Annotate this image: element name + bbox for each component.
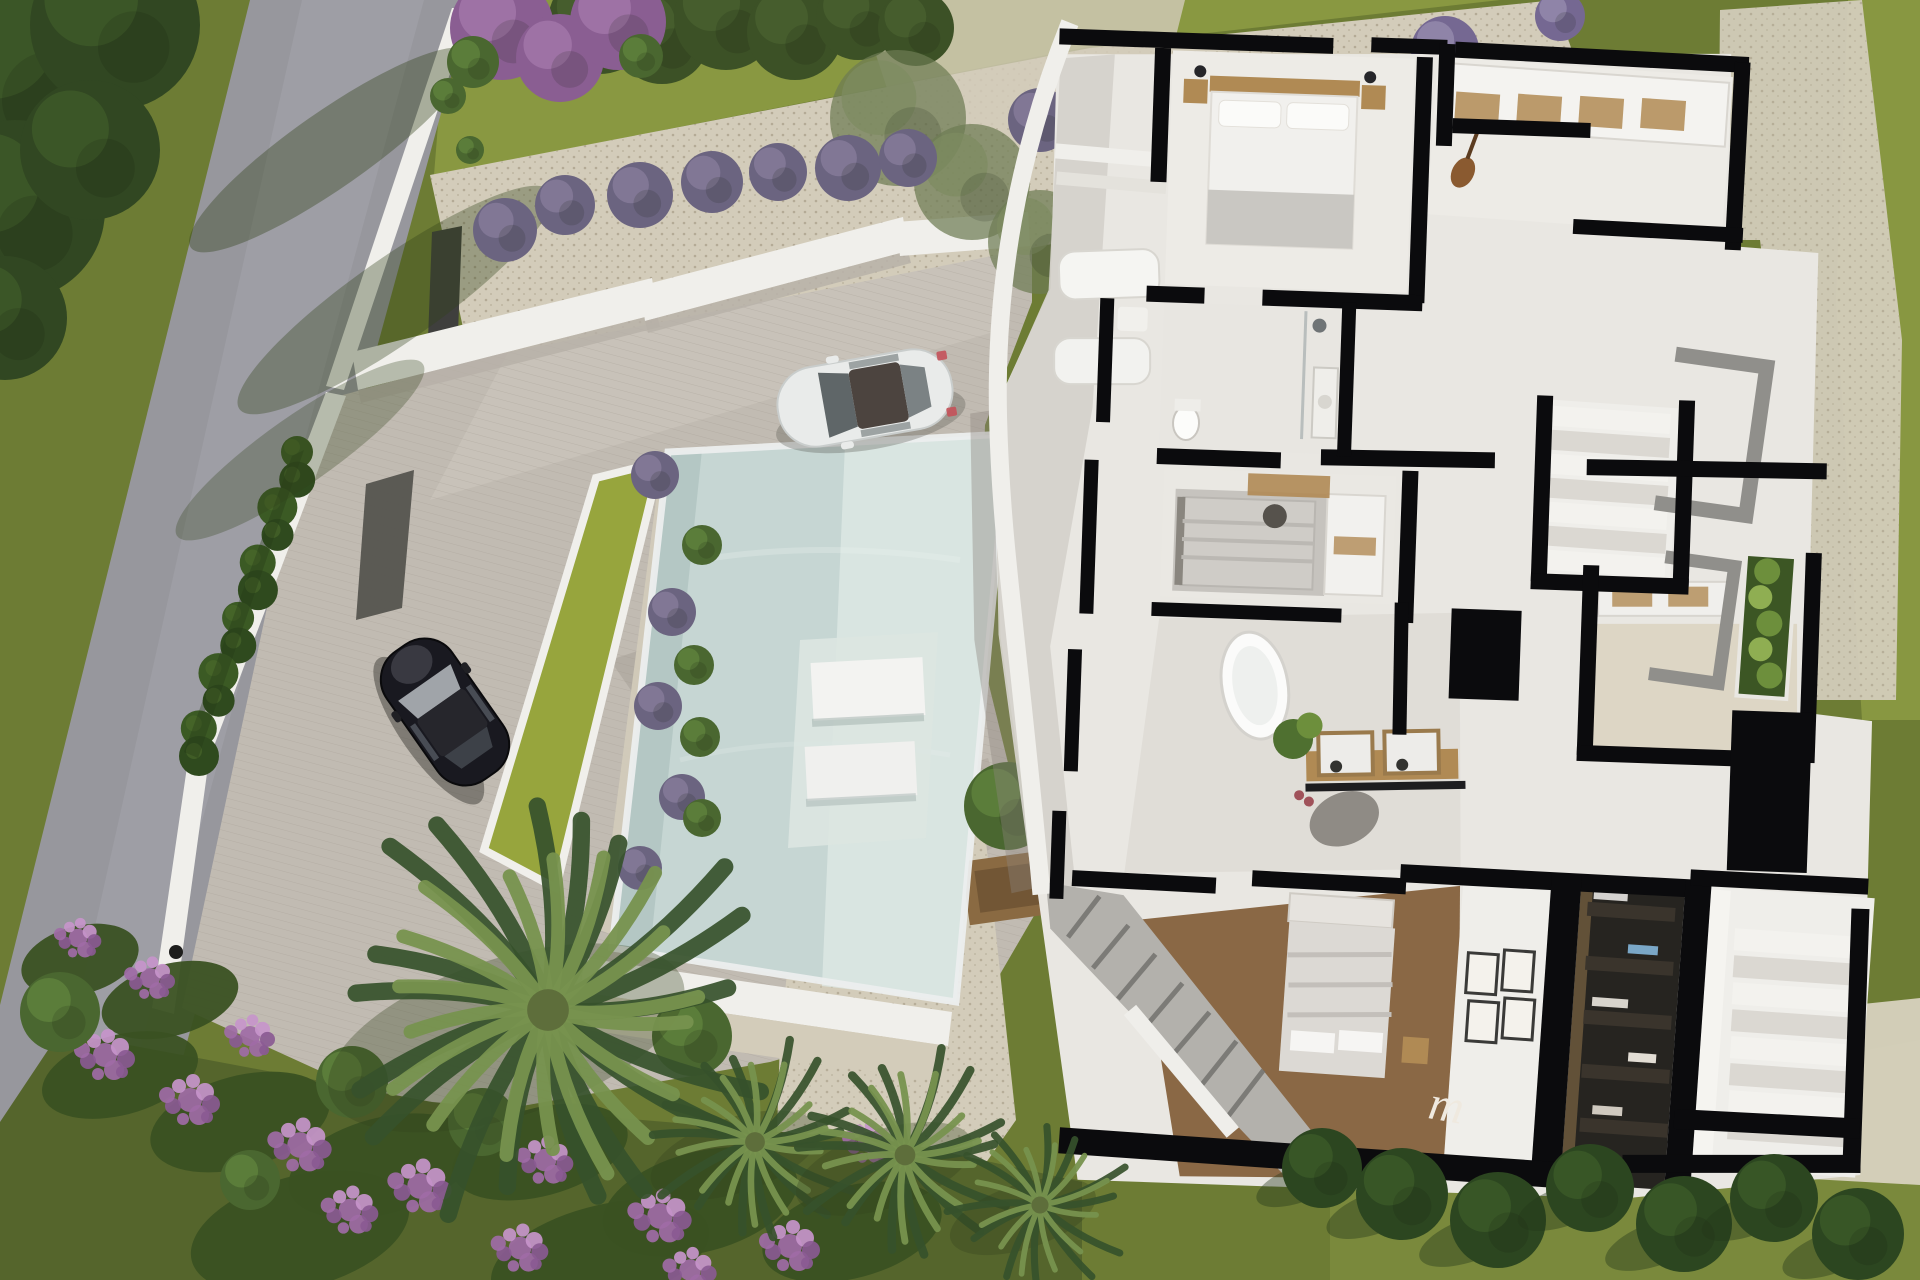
lounger-side-table [1117,307,1148,332]
lawn-bush-8 [683,799,721,837]
picture-frame-4 [1502,998,1535,1040]
green-accent-2 [619,34,663,78]
lavender-3 [607,162,673,228]
tree-canopy-tl-4 [20,80,160,220]
bedroom1-pillow-r [1286,102,1349,130]
garden-shrub-4 [220,1150,280,1210]
lawn-bush-3 [648,588,696,636]
garden-shrub-1 [20,972,100,1052]
lawn-bush-1 [631,451,679,499]
bedroom1-blanket [1206,190,1354,249]
picture-frame-2 [1502,950,1535,992]
bedroom3-bed [1279,921,1395,1078]
lavender-2 [535,175,595,235]
bedroom2-desk [1248,473,1331,498]
lavender-7 [879,129,937,187]
wall-r1-south-a [1146,286,1205,304]
pool-lounger-1 [811,657,926,721]
picture-frame-1 [1466,953,1499,995]
vanity-mirror-1 [1318,732,1373,775]
pool-lounger-2 [805,741,918,801]
lavender-4 [681,151,743,213]
bedroom3-pillow-2 [1338,1030,1383,1053]
lavender-1 [473,198,537,262]
wall-chunk-1 [1449,608,1522,700]
bedroom1-nightstand-r [1361,85,1386,110]
sun-lounger-1 [1058,249,1160,300]
bedroom3-side-table [1401,1037,1429,1065]
wall-top-b [1371,37,1447,55]
wardrobe-shelf-4 [1640,98,1686,131]
vanity-mirror-2 [1384,731,1439,774]
lamp-post [169,945,183,959]
lavender-6 [815,135,881,201]
wall-chunk-2 [1727,710,1813,873]
white-car-roof [848,362,910,430]
lawn-bush-5 [634,682,682,730]
bedroom3-pillow-1 [1290,1030,1335,1053]
wall-tuft-2 [456,136,484,164]
lawn-bush-2 [682,525,722,565]
lawn-bush-6 [680,717,720,757]
toilet-tank [1174,399,1200,412]
picture-frame-3 [1466,1001,1499,1043]
wall-tuft-1 [430,78,466,114]
white-car-taillight-r [946,406,957,417]
lawn-bush-4 [674,645,714,685]
bedroom1-nightstand-l [1183,79,1208,104]
dresser-wood-slot [1334,536,1377,555]
white-car-taillight-l [936,350,947,361]
bedroom1-pillow-l [1218,100,1281,128]
lavender-5 [749,143,807,201]
scene-canvas: m [0,0,1920,1280]
wall-bath2-e [1392,603,1408,735]
villa-aerial-render: m [0,0,1920,1280]
